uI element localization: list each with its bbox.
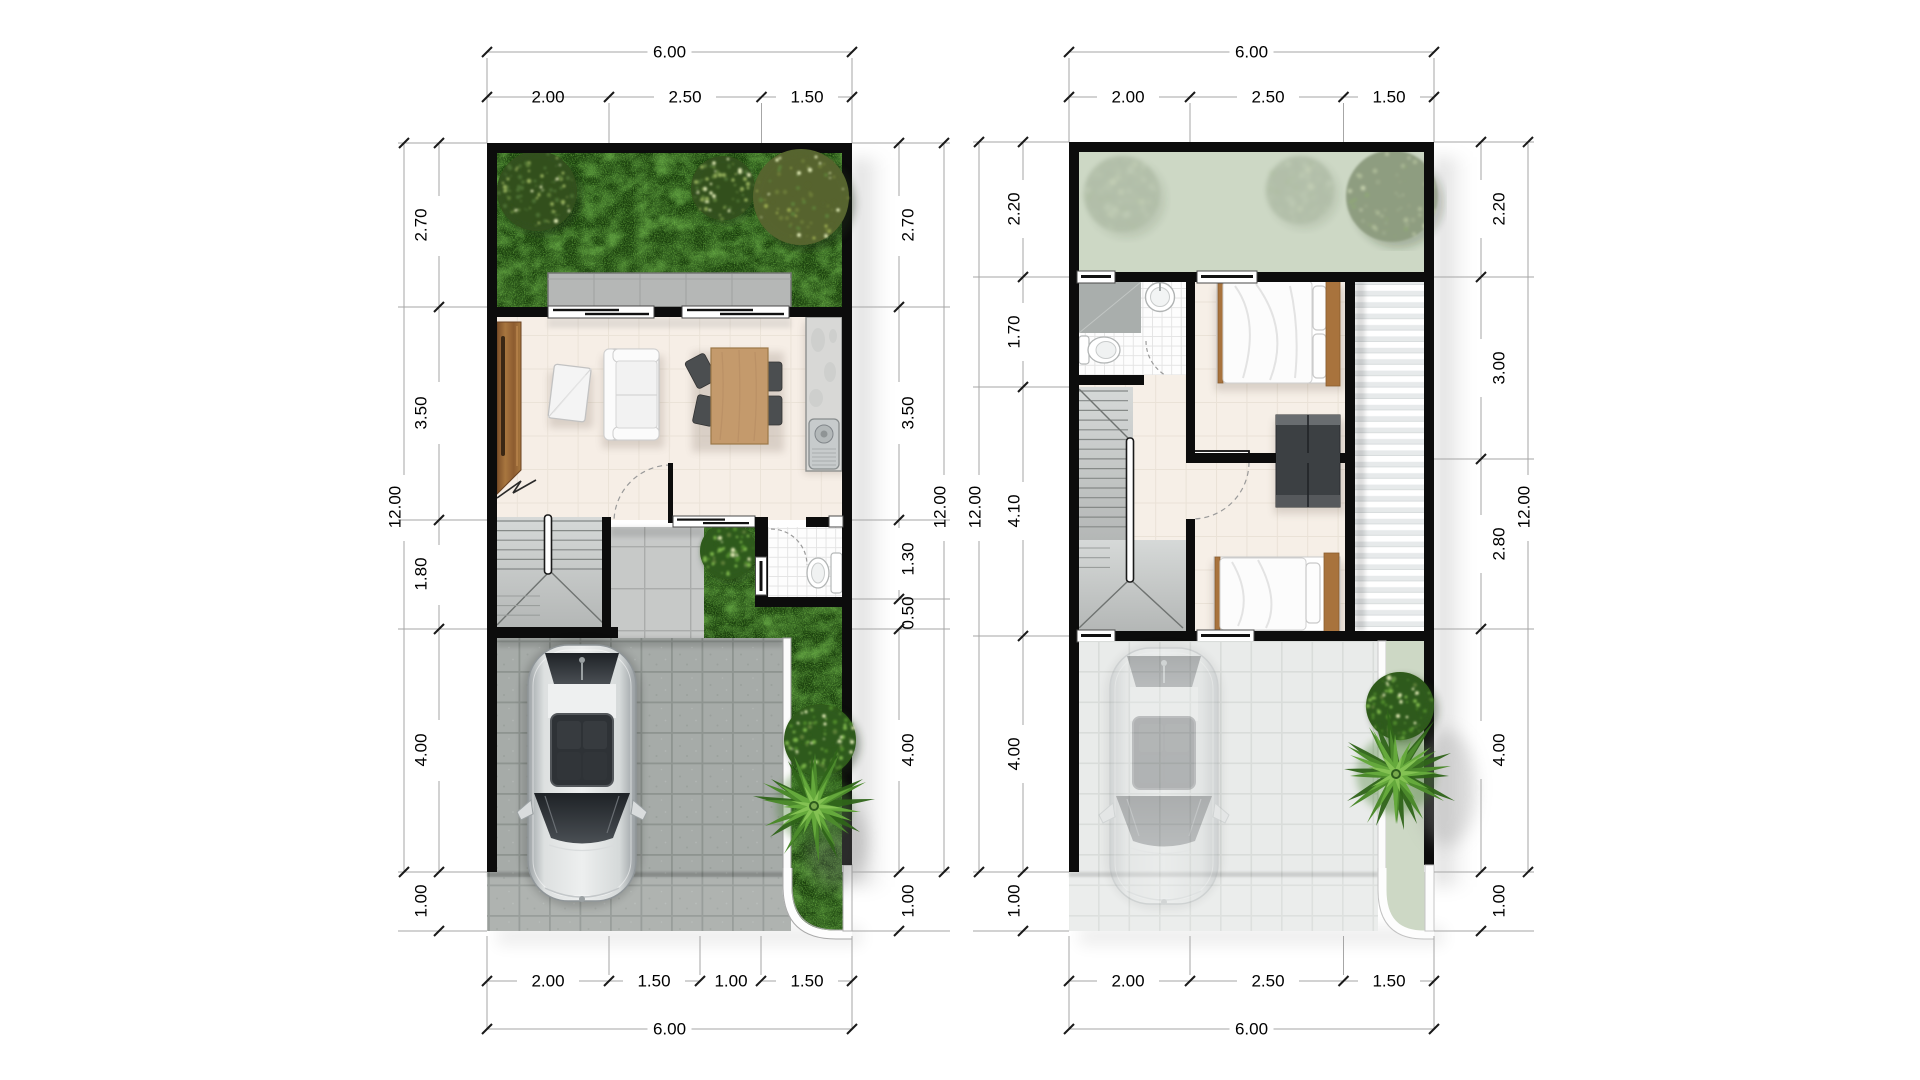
svg-text:4.00: 4.00 — [899, 733, 918, 766]
svg-text:12.00: 12.00 — [931, 486, 950, 529]
svg-text:2.00: 2.00 — [531, 972, 564, 991]
svg-text:2.70: 2.70 — [412, 208, 431, 241]
svg-text:12.00: 12.00 — [1515, 486, 1534, 529]
svg-text:2.20: 2.20 — [1490, 192, 1509, 225]
svg-text:1.00: 1.00 — [412, 884, 431, 917]
svg-text:1.00: 1.00 — [899, 884, 918, 917]
svg-text:2.00: 2.00 — [1111, 88, 1144, 107]
svg-text:3.50: 3.50 — [412, 396, 431, 429]
svg-text:1.50: 1.50 — [790, 972, 823, 991]
svg-text:3.50: 3.50 — [899, 396, 918, 429]
svg-text:12.00: 12.00 — [966, 486, 985, 529]
svg-text:2.50: 2.50 — [1251, 88, 1284, 107]
svg-text:3.00: 3.00 — [1490, 351, 1509, 384]
svg-text:6.00: 6.00 — [1235, 43, 1268, 62]
svg-text:1.50: 1.50 — [790, 88, 823, 107]
svg-text:0.50: 0.50 — [899, 596, 918, 629]
svg-text:6.00: 6.00 — [653, 1020, 686, 1039]
svg-text:1.00: 1.00 — [714, 972, 747, 991]
svg-text:1.80: 1.80 — [412, 557, 431, 590]
svg-text:1.50: 1.50 — [1372, 88, 1405, 107]
svg-text:2.70: 2.70 — [899, 208, 918, 241]
svg-text:2.20: 2.20 — [1005, 192, 1024, 225]
svg-text:1.50: 1.50 — [1372, 972, 1405, 991]
svg-text:4.00: 4.00 — [412, 733, 431, 766]
svg-text:1.50: 1.50 — [637, 972, 670, 991]
svg-text:2.00: 2.00 — [531, 88, 564, 107]
svg-text:4.00: 4.00 — [1490, 733, 1509, 766]
svg-text:2.50: 2.50 — [1251, 972, 1284, 991]
svg-text:1.30: 1.30 — [899, 542, 918, 575]
svg-text:2.80: 2.80 — [1490, 527, 1509, 560]
svg-text:2.00: 2.00 — [1111, 972, 1144, 991]
svg-text:6.00: 6.00 — [1235, 1020, 1268, 1039]
svg-text:1.70: 1.70 — [1005, 315, 1024, 348]
svg-text:6.00: 6.00 — [653, 43, 686, 62]
svg-text:4.10: 4.10 — [1005, 494, 1024, 527]
svg-text:4.00: 4.00 — [1005, 737, 1024, 770]
svg-text:2.50: 2.50 — [668, 88, 701, 107]
svg-text:1.00: 1.00 — [1005, 884, 1024, 917]
svg-text:12.00: 12.00 — [386, 486, 405, 529]
svg-text:1.00: 1.00 — [1490, 884, 1509, 917]
